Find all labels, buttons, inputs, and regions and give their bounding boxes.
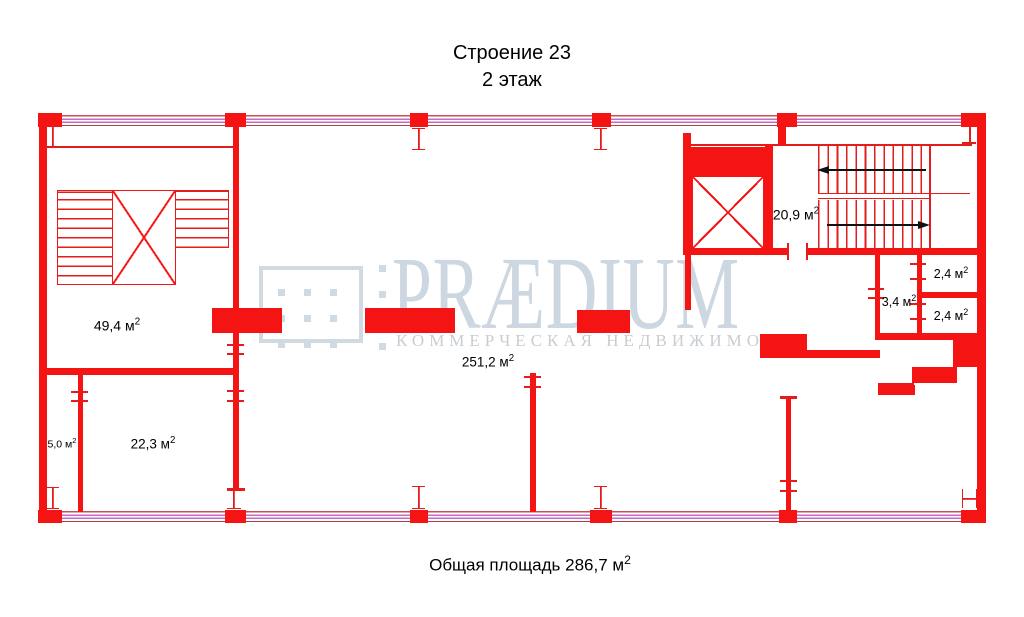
room-area-label: 251,2 м2	[462, 353, 514, 370]
room-area-label: 2,4 м2	[934, 265, 968, 281]
page-title: Строение 23 2 этаж	[0, 40, 1024, 94]
room-area-label: 2,4 м2	[934, 307, 968, 323]
floor-title: 2 этаж	[0, 67, 1024, 94]
building-title: Строение 23	[0, 40, 1024, 67]
room-area-label: 22,3 м2	[131, 435, 176, 452]
floor-plan-page: PRÆDIUM КОММЕРЧЕСКАЯ НЕДВИЖИМОСТЬ	[0, 0, 1024, 617]
labels-layer: Строение 23 2 этаж 49,4 м2 5,0 м2 22,3 м…	[0, 0, 1024, 617]
room-area-label: 5,0 м2	[48, 436, 77, 451]
total-area-label: Общая площадь 286,7 м2	[429, 553, 631, 576]
room-area-label: 49,4 м2	[94, 317, 140, 334]
room-area-label: 20,9 м2	[773, 206, 819, 223]
room-area-label: 3,4 м2	[882, 293, 916, 309]
